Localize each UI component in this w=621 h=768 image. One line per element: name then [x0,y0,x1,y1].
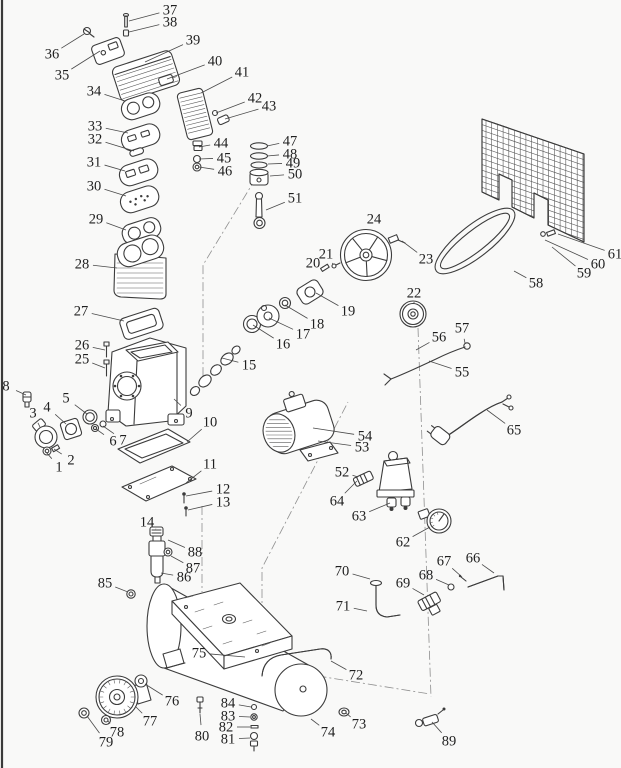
part-label-13: 13 [216,495,231,511]
bolt-21-part [332,264,336,268]
leader-line-63 [369,503,390,512]
part-label-84: 84 [221,696,236,712]
screw-36 [84,28,95,38]
hub-19 [295,278,325,306]
fitting-52-part [353,471,374,487]
part-label-77: 77 [143,714,158,730]
nut-85-part [127,590,135,598]
seal-73 [339,708,349,716]
leader-line-4 [55,414,66,424]
leader-line-84 [239,705,251,707]
washer-1-part [43,447,51,455]
leader-line-85 [115,587,128,592]
check-valve-81-part [251,741,258,746]
part-label-65: 65 [507,423,522,439]
washer-83 [251,714,257,720]
base-gasket-10-part [118,429,190,463]
leader-line-88 [168,540,185,548]
part-label-41: 41 [235,65,250,81]
leader-line-23 [402,241,417,252]
flywheel-24 [341,230,392,281]
part-label-2: 2 [67,453,74,469]
pressure-switch-63-part [377,490,414,497]
pressure-gauge-62 [418,509,451,533]
seal-73-part [339,708,349,716]
bolt-21-part [336,263,340,265]
leader-line-21 [332,263,333,264]
leader-line-81 [239,738,250,739]
leader-line-38 [129,25,159,32]
nut-84-part [252,705,257,710]
discharge-tube-55-57-part [464,343,470,349]
part-label-14: 14 [140,515,155,531]
leader-line-62 [413,527,430,537]
power-cord-65-part [447,402,502,436]
part-label-74: 74 [321,725,336,741]
crank-disc-17-part [257,305,279,327]
washer-38-part [124,30,129,36]
crank-disc-17 [257,305,279,327]
part-label-52: 52 [335,465,350,481]
leader-line-37 [129,13,159,21]
part-label-87: 87 [186,561,201,577]
part-label-7: 7 [119,433,126,449]
leader-line-42 [216,102,245,113]
part-labels: 1234567891011121314151617181920212223242… [2,3,621,751]
part-label-6: 6 [109,434,116,450]
washer-83-part [251,714,257,720]
key-20 [321,264,330,271]
leader-line-89 [432,722,442,733]
part-label-42: 42 [248,91,263,107]
leader-line-68 [436,579,449,585]
part-label-73: 73 [352,717,367,733]
part-label-35: 35 [55,68,70,84]
part-label-55: 55 [455,365,470,381]
power-cord-65-part-part [432,426,435,428]
leader-line-67 [452,568,462,577]
leader-line-58 [514,271,526,278]
part-label-51: 51 [288,191,303,207]
leader-line-56 [416,342,429,350]
leader-line-51 [266,202,285,210]
washer-38 [124,30,129,36]
crankcase-gasket-27-part [119,307,165,341]
check-valve-81 [251,733,258,752]
exploded-parts-diagram: 1234567891011121314151617181920212223242… [0,0,621,768]
part-label-1: 1 [55,460,62,476]
valve-44 [193,141,202,151]
oil-pump-3 [32,418,57,448]
part-label-63: 63 [352,509,367,525]
bolt-26-part [104,342,109,346]
leader-line-27 [92,313,124,321]
filter-regulator-14-part [164,548,172,556]
crankcase-9-part [138,385,141,388]
leader-line-47 [267,143,279,146]
crankcase-9 [106,338,186,426]
bolt-25-part [104,360,109,364]
washer-1 [43,447,51,455]
part-label-24: 24 [367,212,382,228]
valve-43-part [217,114,230,125]
washer-78-part [102,716,111,725]
part-label-69: 69 [396,576,411,592]
part-label-25: 25 [75,352,90,368]
part-label-50: 50 [288,167,303,183]
piston-50 [250,169,268,185]
filter-regulator-14-part [149,541,165,556]
nut-85 [127,590,135,598]
part-label-8: 8 [2,379,9,395]
part-label-44: 44 [214,136,229,152]
washer-78 [102,716,111,725]
piston-50-part [250,169,268,175]
power-cord-65-part [507,395,511,399]
exploded-parts-diagram-page: 1234567891011121314151617181920212223242… [0,0,621,768]
part-label-9: 9 [185,406,192,422]
guard-bolt-part [547,230,556,236]
part-label-54: 54 [358,429,373,445]
screw-12-part [182,492,186,496]
nut-84 [252,705,257,710]
leader-line-28 [93,265,117,268]
crankshaft-15-part [209,363,224,378]
part-label-61: 61 [608,247,621,263]
pressure-switch-63 [377,452,414,512]
part-label-56: 56 [432,330,447,346]
pulley-22-part [400,301,426,327]
leader-line-80 [200,714,201,725]
valve-plate-30-part [118,183,162,215]
v-belt-58-part [427,198,524,284]
part-label-5: 5 [62,391,69,407]
power-cord-65 [426,395,513,446]
valve-plate-31-part [117,156,161,188]
crankshaft-15-part [196,373,213,390]
part-label-67: 67 [437,554,452,570]
hub-19-part [295,278,325,306]
leader-line-41 [201,77,232,93]
part-label-62: 62 [396,535,411,551]
discharge-tube-55-57-part [385,379,391,385]
leader-line-87 [171,556,183,563]
part-label-11: 11 [203,457,217,473]
v-belt-58 [427,198,524,284]
flywheel-24-part [360,249,372,261]
outlet-pipe-70-71-part [371,581,382,586]
leader-line-69 [413,588,424,595]
filter-regulator-14-part [155,577,160,583]
part-label-19: 19 [341,304,356,320]
piston-ring-49-part [251,162,267,168]
part-label-79: 79 [99,735,114,751]
leader-line-45 [199,158,213,159]
bolt-37 [124,14,129,28]
wheel-77-part [110,690,125,705]
screw-13-part [184,506,188,510]
crankcase-9-part [114,385,117,388]
leader-line-26 [93,347,105,350]
leader-line-65 [487,410,505,423]
part-label-30: 30 [87,179,102,195]
valve-43 [217,114,230,125]
leader-line-50 [270,175,284,176]
drain-cock-89 [416,708,446,727]
part-label-89: 89 [442,734,457,750]
air-filter-35 [90,36,125,65]
crankcase-9-part [120,375,123,378]
leader-line-6 [96,429,104,435]
pin-82 [251,726,258,729]
part-label-22: 22 [407,286,422,302]
leader-line-10 [187,429,202,442]
rod-66-part [468,576,504,590]
pin-67 [459,575,466,581]
crankcase-9-part [132,375,135,378]
bolt-37-part [125,16,128,27]
piston-ring-48-part [251,153,268,159]
leader-line-48 [267,155,279,156]
part-label-33: 33 [88,119,103,135]
crankcase-9-part [132,395,135,398]
base-plate-11-part [122,466,196,501]
discharge-tube-55-57-part [384,374,391,379]
leader-line-43 [225,109,258,119]
drain-cock-89-part [443,708,446,711]
motor-53-54 [258,382,338,461]
part-label-80: 80 [195,729,210,745]
leader-line-74 [311,719,319,725]
air-filter-35-part [90,36,125,65]
piston-ring-47 [251,143,268,149]
part-label-58: 58 [529,276,544,292]
part-label-68: 68 [419,568,434,584]
leader-line-13 [188,504,212,510]
crankshaft-15 [189,344,242,397]
pin-67-part [461,577,466,581]
pressure-switch-63-part [387,498,396,507]
leader-line-71 [354,608,367,611]
part-label-10: 10 [203,415,218,431]
hubcap-76-part [135,675,147,687]
rod-66-part [468,576,504,590]
leader-line-70 [353,574,370,579]
valve-plate-30 [118,183,162,215]
part-label-23: 23 [419,252,434,268]
piston-ring-47-part [251,143,268,149]
part-label-31: 31 [87,155,102,171]
part-label-40: 40 [208,54,223,70]
part-label-3: 3 [29,406,36,422]
leader-line-12 [186,491,212,496]
rod-66 [468,576,504,590]
hubcap-76 [135,675,147,687]
leader-line-72 [331,661,346,670]
part-label-36: 36 [45,47,60,63]
part-label-21: 21 [319,247,334,263]
part-label-26: 26 [75,338,90,354]
leader-line-59 [552,247,575,266]
oil-pump-3-part [35,426,57,448]
leader-line-64 [345,481,357,493]
leader-line-66 [482,564,494,573]
power-cord-65-part [509,406,513,410]
cylinder-block-28 [114,232,167,299]
part-label-38: 38 [163,15,178,31]
finned-cylinder-41 [177,88,214,141]
leader-line-36 [61,34,84,48]
bolt-23 [388,235,405,243]
bolt-80-part [197,697,203,702]
part-label-46: 46 [218,164,233,180]
leader-line-5 [75,405,87,414]
part-label-28: 28 [75,257,90,273]
part-label-27: 27 [74,304,89,320]
screw-36-part [90,34,94,37]
power-cord-65-part [426,422,451,446]
bolt-23-part [388,235,398,243]
leader-line-49 [268,163,282,164]
belt-guard-grille [475,88,600,291]
leader-line-25 [92,363,105,368]
part-label-75: 75 [192,646,207,662]
leader-line-79 [87,716,100,733]
part-label-43: 43 [262,99,277,115]
part-label-16: 16 [276,337,291,353]
part-label-29: 29 [89,212,104,228]
power-cord-65-part [503,404,509,407]
diagram-artwork [23,14,600,752]
part-label-15: 15 [242,358,257,374]
leader-line-57 [464,339,465,343]
leader-line-29 [106,223,126,230]
leader-line-33 [106,128,128,133]
base-gasket-10 [118,429,190,463]
valve-44-part [193,141,202,146]
part-label-88: 88 [188,545,203,561]
part-label-70: 70 [335,564,350,580]
power-cord-65-part-part [429,425,451,446]
part-label-71: 71 [336,599,351,615]
leader-line-30 [104,189,126,196]
leader-line-77 [136,707,142,713]
wheel-77 [96,676,138,718]
part-label-57: 57 [455,321,470,337]
pulley-22 [400,301,426,327]
v-belt-58-part [435,206,516,275]
part-label-34: 34 [87,84,102,100]
part-label-76: 76 [165,694,180,710]
connecting-rod-51 [254,193,265,229]
power-cord-65-part-part [427,431,430,433]
part-label-18: 18 [310,317,325,333]
screw-13 [184,506,188,516]
crankshaft-15-part [189,385,202,398]
screw-12 [182,492,186,503]
guard-bolt [541,230,556,237]
part-label-17: 17 [296,327,311,343]
tank-body-part [275,664,327,716]
part-label-66: 66 [466,551,481,567]
part-label-72: 72 [349,668,364,684]
leader-line-18 [285,305,308,318]
construction-axis-line-1 [203,178,256,378]
part-label-4: 4 [43,400,51,416]
bolt-26 [104,342,109,357]
bolt-80 [197,697,203,713]
leader-line-55 [429,361,452,369]
key-20-part [321,264,330,271]
valve-plate-31 [117,156,161,188]
drain-cock-89-part [416,720,423,727]
pin-82-part [251,726,258,729]
drain-cock-89-part [438,710,443,714]
part-label-64: 64 [330,494,345,510]
connecting-rod-51-part [256,199,262,217]
leader-line-60 [545,240,588,259]
base-plate-11 [122,466,196,501]
guard-bolt-part [541,232,546,237]
leader-line-83 [239,716,250,717]
crankcase-gasket-27 [119,307,165,341]
pressure-switch-63-part [401,497,410,506]
connecting-rod-51-part [254,218,265,229]
leader-line-19 [316,293,338,306]
pressure-switch-63-part [404,506,408,510]
finned-cylinder-41-part [177,88,214,141]
filter-regulator-14-part [153,536,161,541]
part-label-60: 60 [591,257,606,273]
piston-ring-49 [251,162,267,168]
crankcase-9-part [120,395,123,398]
pressure-switch-63-part [390,507,394,511]
check-valve-81-part [251,733,258,740]
part-label-85: 85 [98,576,113,592]
part-label-59: 59 [577,266,592,282]
filter-regulator-14-part [151,556,163,577]
part-label-39: 39 [186,33,201,49]
drain-cock-89-part [422,714,439,726]
piston-ring-48 [251,153,268,159]
fitting-52 [353,471,374,487]
